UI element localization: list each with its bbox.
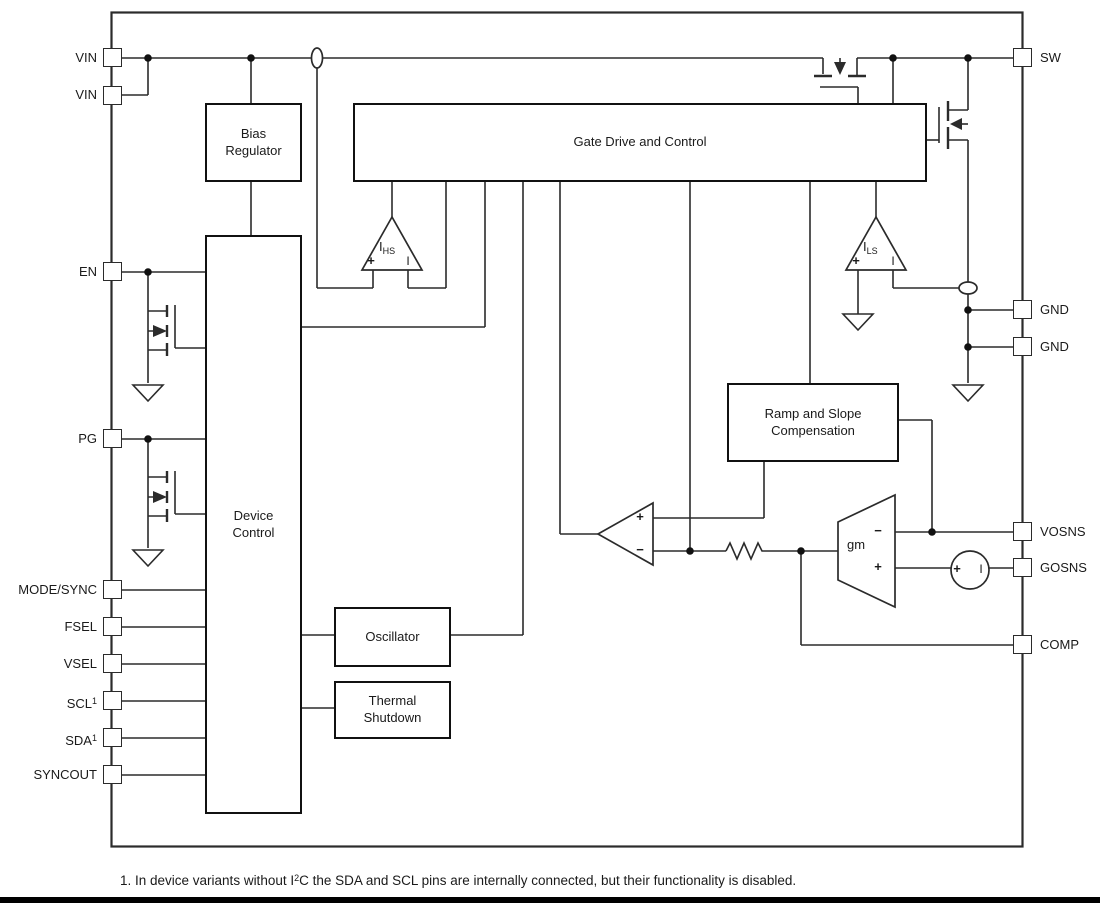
pin-label-vin-2: VIN: [0, 87, 97, 103]
pin-en: [103, 262, 122, 281]
thermal-shutdown-block: Thermal Shutdown: [334, 681, 451, 739]
offset-source-minus-mark: I: [974, 562, 988, 576]
page-divider-bar: [0, 897, 1100, 903]
pin-label-comp: COMP: [1040, 637, 1100, 653]
pin-sda: [103, 728, 122, 747]
pg-fet-arrow: [153, 491, 167, 503]
pin-syncout: [103, 765, 122, 784]
wire-plus-ramp: [653, 458, 764, 518]
en-fet-arrow: [153, 325, 167, 337]
vin-sense-oval: [312, 48, 323, 68]
pin-sw: [1013, 48, 1032, 67]
hs-fet-gate: [820, 87, 858, 103]
pin-label-sw: SW: [1040, 50, 1100, 66]
footnote-pre: 1. In device variants without I: [120, 873, 294, 888]
ihs-minus-mark: I: [401, 254, 415, 268]
footnote-post: C the SDA and SCL pins are internally co…: [299, 873, 796, 888]
bias-regulator-block: Bias Regulator: [205, 103, 302, 182]
pin-label-gosns: GOSNS: [1040, 560, 1100, 576]
ground-ils: [843, 314, 873, 330]
bias-regulator-label: Bias Regulator: [225, 126, 281, 160]
ground-en: [133, 385, 163, 401]
oscillator-label: Oscillator: [365, 629, 419, 646]
pin-label-mode-sync: MODE/SYNC: [0, 582, 97, 598]
pin-label-vin-1: VIN: [0, 50, 97, 66]
wire-comparator-out: [560, 179, 598, 534]
pin-vin-2: [103, 86, 122, 105]
pin-label-vosns: VOSNS: [1040, 524, 1100, 540]
pin-scl: [103, 691, 122, 710]
pin-vosns: [1013, 522, 1032, 541]
gm-plus-mark: +: [871, 560, 885, 574]
pin-label-fsel: FSEL: [0, 619, 97, 635]
en-fet-gate: [175, 305, 205, 348]
gm-amp-label: gm: [841, 537, 871, 552]
pin-gosns: [1013, 558, 1032, 577]
ls-fet-drain: [948, 58, 968, 110]
pin-gnd-2: [1013, 337, 1032, 356]
pin-label-en: EN: [0, 264, 97, 280]
ramp-compensation-block: Ramp and Slope Compensation: [727, 383, 899, 462]
pin-gnd-1: [1013, 300, 1032, 319]
ls-fet-arrow: [950, 118, 962, 130]
pin-label-gnd-1: GND: [1040, 302, 1100, 318]
pin-label-vsel: VSEL: [0, 656, 97, 672]
pin-vsel: [103, 654, 122, 673]
footnote: 1. In device variants without I2C the SD…: [120, 873, 796, 888]
pin-label-gnd-2: GND: [1040, 339, 1100, 355]
pin-label-scl: SCL1: [0, 693, 97, 709]
ils-plus-mark: +: [849, 254, 863, 268]
wire-oscillator: [298, 179, 523, 635]
comparator-plus-mark: +: [633, 510, 647, 524]
sw-sense-oval: [959, 282, 977, 294]
gate-drive-label: Gate Drive and Control: [574, 134, 707, 151]
ihs-plus-mark: +: [364, 254, 378, 268]
oscillator-block: Oscillator: [334, 607, 451, 667]
pin-label-syncout: SYNCOUT: [0, 767, 97, 783]
pin-mode-sync: [103, 580, 122, 599]
wire-gnd-taps: [968, 310, 1015, 347]
pin-vin-1: [103, 48, 122, 67]
ils-amp-label: ILS: [863, 239, 878, 256]
gate-drive-block: Gate Drive and Control: [353, 103, 927, 182]
gm-minus-mark: −: [871, 524, 885, 538]
hs-fet-arrow: [834, 62, 846, 75]
pin-comp: [1013, 635, 1032, 654]
ramp-compensation-label: Ramp and Slope Compensation: [765, 406, 862, 440]
wire-ils-out: [893, 270, 960, 288]
resistor: [726, 543, 838, 559]
ihs-amp-label: IHS: [379, 239, 395, 256]
wire-ihs-out: [408, 179, 446, 288]
wire-vin2: [122, 58, 148, 95]
ground-power: [953, 385, 983, 401]
pin-label-sda: SDA1: [0, 730, 97, 746]
ground-pg: [133, 550, 163, 566]
offset-source-plus-mark: +: [950, 562, 964, 576]
wire-config-pins: [122, 590, 205, 775]
block-diagram: Bias Regulator Gate Drive and Control De…: [0, 0, 1100, 903]
thermal-shutdown-label: Thermal Shutdown: [364, 693, 422, 727]
pin-label-pg: PG: [0, 431, 97, 447]
pg-fet-gate: [175, 471, 205, 514]
device-control-block: Device Control: [205, 235, 302, 814]
device-control-label: Device Control: [233, 508, 275, 542]
pin-fsel: [103, 617, 122, 636]
ils-minus-mark: I: [886, 254, 900, 268]
wire-ramp-to-vosns: [895, 420, 932, 532]
pin-pg: [103, 429, 122, 448]
comparator-minus-mark: −: [633, 543, 647, 557]
